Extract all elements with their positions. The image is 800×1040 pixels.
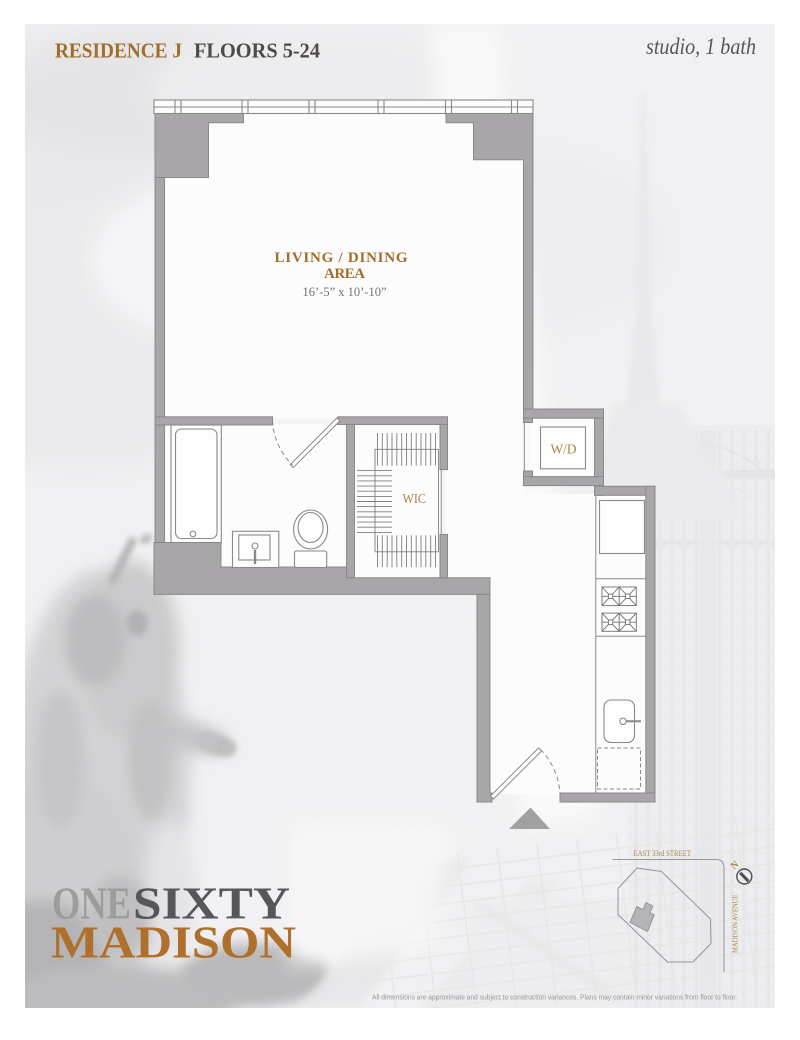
svg-text:studio, 1 bath: studio, 1 bath [646, 34, 756, 59]
svg-text:FLOORS 5-24: FLOORS 5-24 [194, 39, 320, 63]
svg-text:W/D: W/D [551, 442, 577, 457]
svg-text:RESIDENCE J: RESIDENCE J [55, 39, 182, 63]
svg-text:WIC: WIC [403, 491, 427, 506]
svg-text:MADISON: MADISON [51, 917, 296, 968]
svg-text:All dimensions are approximate: All dimensions are approximate and subje… [372, 995, 737, 1002]
svg-text:LIVING / DINING: LIVING / DINING [275, 250, 408, 266]
svg-text:MADISON AVENUE: MADISON AVENUE [731, 894, 740, 953]
svg-text:16’-5” x 10’-10”: 16’-5” x 10’-10” [303, 285, 387, 299]
svg-text:EAST 33rd STREET: EAST 33rd STREET [634, 849, 692, 858]
svg-text:AREA: AREA [324, 266, 365, 282]
